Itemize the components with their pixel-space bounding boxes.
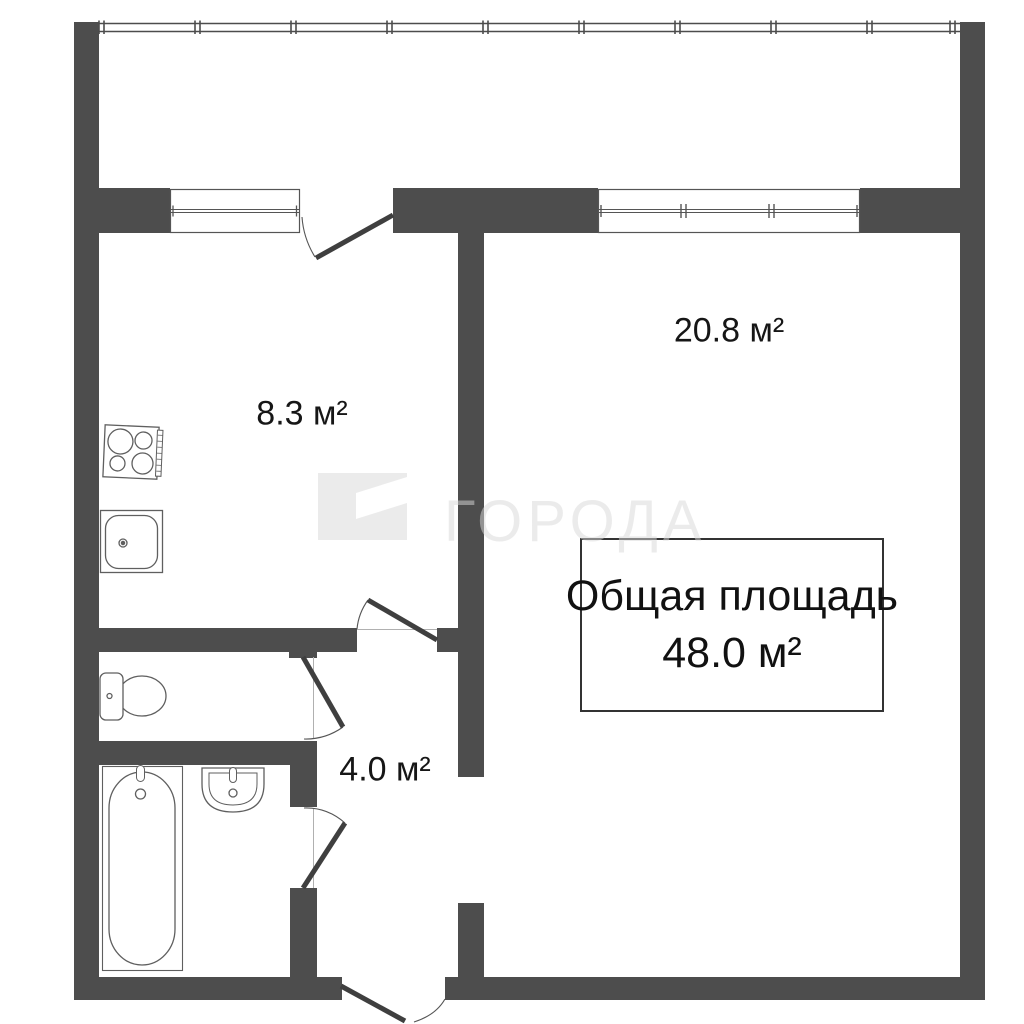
hallway-area-label: 4.0 м²	[339, 751, 430, 790]
wall-outer-left	[74, 22, 99, 1000]
kitchen-window	[171, 190, 300, 233]
kitchen-hall-door	[357, 600, 437, 640]
wall-kitchen-living	[458, 233, 484, 777]
stove-icon	[103, 425, 163, 479]
wall-top-right	[860, 188, 960, 233]
living-room-area-label: 20.8 м²	[674, 312, 784, 351]
wall-kitchen-hall	[99, 628, 357, 652]
total-area-value: 48.0 м²	[662, 632, 802, 675]
wall-top-kitchen	[99, 188, 170, 233]
total-area-box: Общая площадь 48.0 м²	[580, 538, 884, 712]
bathroom-door	[303, 808, 345, 888]
bathtub-icon	[103, 766, 183, 971]
total-area-title: Общая площадь	[566, 575, 898, 618]
entrance-door	[341, 986, 445, 1022]
floor-plan: 8.3 м² 20.8 м² 4.0 м² Общая площадь 48.0…	[0, 0, 1024, 1024]
washbasin-icon	[202, 768, 264, 813]
toilet-door	[303, 657, 343, 739]
balcony-railing	[99, 21, 960, 35]
wall-hall-living-lower	[458, 903, 484, 977]
kitchen-sink-icon	[101, 511, 163, 573]
living-room-window	[599, 190, 860, 233]
toilet-icon	[100, 673, 166, 720]
wall-bottom-right	[445, 977, 985, 1000]
wall-bottom-left	[74, 977, 342, 1000]
wall-outer-right	[960, 22, 985, 1000]
walls	[74, 22, 985, 1000]
kitchen-area-label: 8.3 м²	[256, 395, 347, 434]
wall-top-middle	[393, 188, 598, 233]
wall-bath-right-upper	[290, 765, 317, 807]
wall-kitchen-hall-stub	[437, 628, 460, 652]
kitchen-balcony-door	[302, 215, 393, 258]
floor-plan-drawing	[0, 0, 1024, 1024]
wall-toilet-bath-divider	[99, 741, 317, 765]
wall-bath-right-lower	[290, 888, 317, 977]
